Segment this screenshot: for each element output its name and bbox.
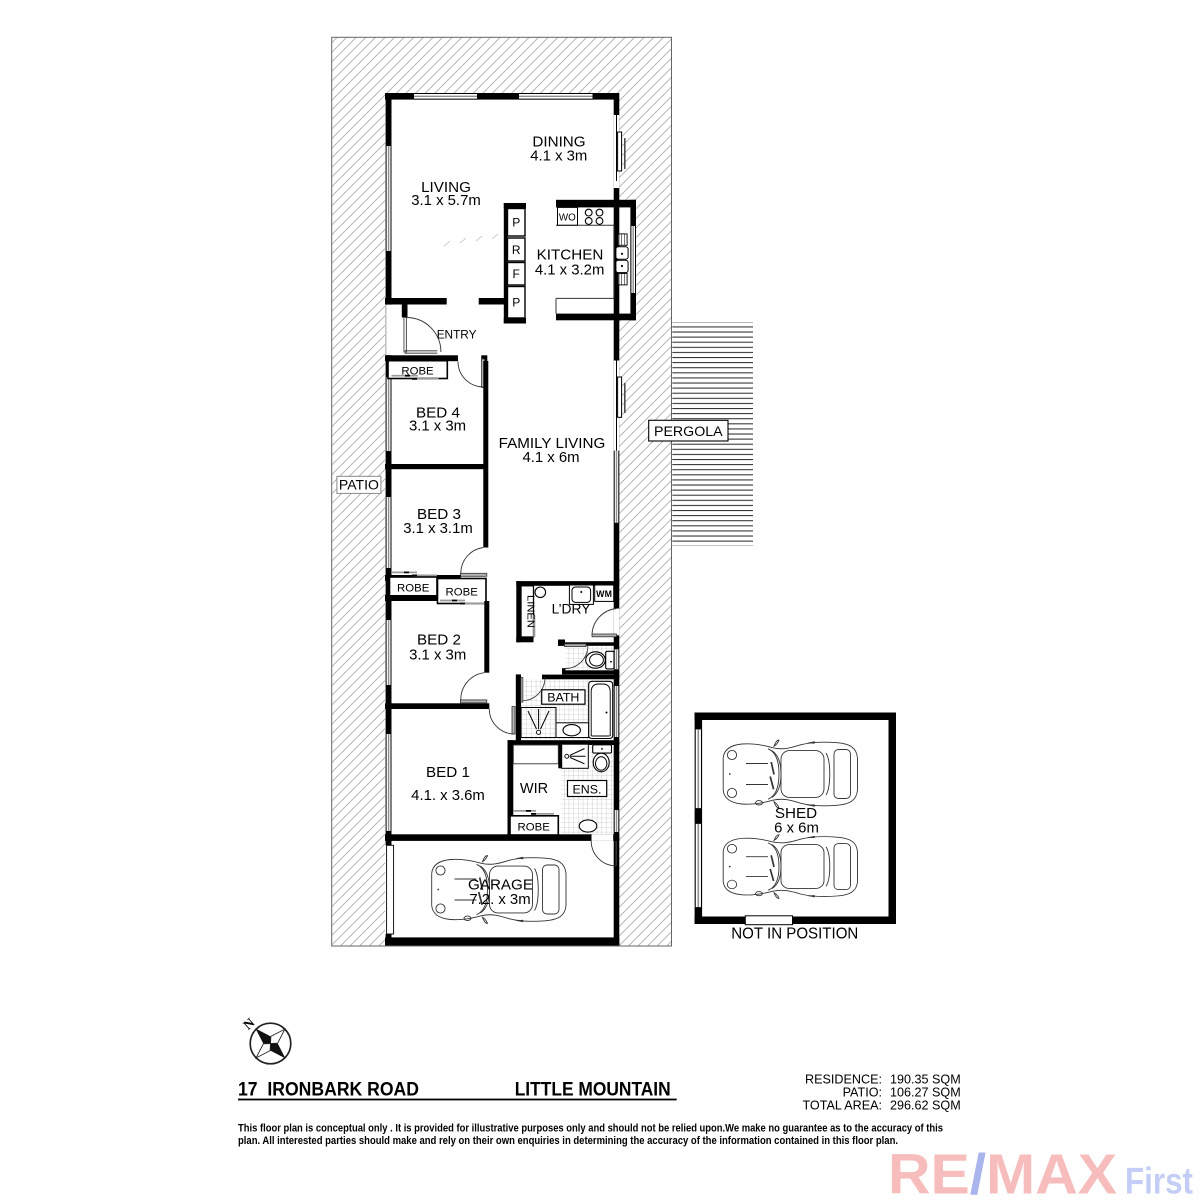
svg-text:RESIDENCE:: RESIDENCE:: [805, 1072, 882, 1086]
svg-text:LINEN: LINEN: [525, 595, 537, 628]
svg-text:4.1 x 3.2m: 4.1 x 3.2m: [535, 263, 605, 279]
svg-text:BATH: BATH: [547, 690, 579, 704]
svg-text:3.1 x 5.7m: 3.1 x 5.7m: [411, 193, 481, 209]
svg-text:ROBE: ROBE: [401, 365, 434, 377]
svg-text:KITCHEN: KITCHEN: [537, 247, 604, 264]
svg-text:4.1 x 3m: 4.1 x 3m: [530, 149, 587, 165]
svg-text:P: P: [512, 296, 520, 310]
svg-text:First: First: [1125, 1161, 1193, 1200]
svg-text:PERGOLA: PERGOLA: [654, 424, 723, 440]
svg-text:F: F: [513, 267, 520, 281]
svg-text:4.1 x 6m: 4.1 x 6m: [522, 450, 579, 466]
svg-text:RE/MAX: RE/MAX: [888, 1143, 1117, 1200]
svg-text:WM: WM: [596, 589, 612, 599]
svg-text:296.62 SQM: 296.62 SQM: [890, 1099, 961, 1113]
svg-text:plan. All interested parties s: plan. All interested parties should make…: [238, 1135, 898, 1147]
svg-text:ENS.: ENS.: [573, 782, 602, 796]
svg-text:PATIO:: PATIO:: [843, 1085, 882, 1099]
svg-text:R: R: [512, 243, 521, 257]
svg-text:NOT IN POSITION: NOT IN POSITION: [731, 926, 858, 943]
svg-text:6 x 6m: 6 x 6m: [774, 820, 819, 836]
svg-text:17 IRONBARK ROAD: 17 IRONBARK ROAD: [238, 1080, 419, 1101]
svg-text:ROBE: ROBE: [397, 583, 430, 595]
svg-text:WO: WO: [559, 213, 576, 224]
svg-text:106.27 SQM: 106.27 SQM: [890, 1085, 961, 1099]
svg-text:ROBE: ROBE: [518, 821, 551, 833]
svg-text:PATIO: PATIO: [339, 477, 379, 493]
svg-text:L’DRY: L’DRY: [552, 602, 591, 617]
svg-text:BED 2: BED 2: [417, 632, 461, 649]
svg-text:3.1 x 3.1m: 3.1 x 3.1m: [403, 521, 473, 537]
svg-text:3.1 x 3m: 3.1 x 3m: [409, 648, 466, 664]
svg-text:4.1. x 3.6m: 4.1. x 3.6m: [411, 788, 485, 804]
svg-text:BED 1: BED 1: [426, 764, 470, 781]
svg-text:TOTAL AREA:: TOTAL AREA:: [802, 1099, 882, 1113]
svg-text:P: P: [512, 216, 520, 230]
svg-text:3.1 x 3m: 3.1 x 3m: [409, 418, 466, 434]
svg-text:ENTRY: ENTRY: [437, 328, 477, 342]
svg-text:LITTLE MOUNTAIN: LITTLE MOUNTAIN: [515, 1080, 671, 1101]
svg-text:7.2. x 3m: 7.2. x 3m: [469, 892, 530, 908]
svg-text:WIR: WIR: [520, 781, 548, 797]
svg-text:ROBE: ROBE: [446, 587, 479, 599]
svg-text:190.35 SQM: 190.35 SQM: [890, 1072, 961, 1086]
svg-text:This floor plan is conceptual: This floor plan is conceptual only . It …: [238, 1123, 943, 1135]
